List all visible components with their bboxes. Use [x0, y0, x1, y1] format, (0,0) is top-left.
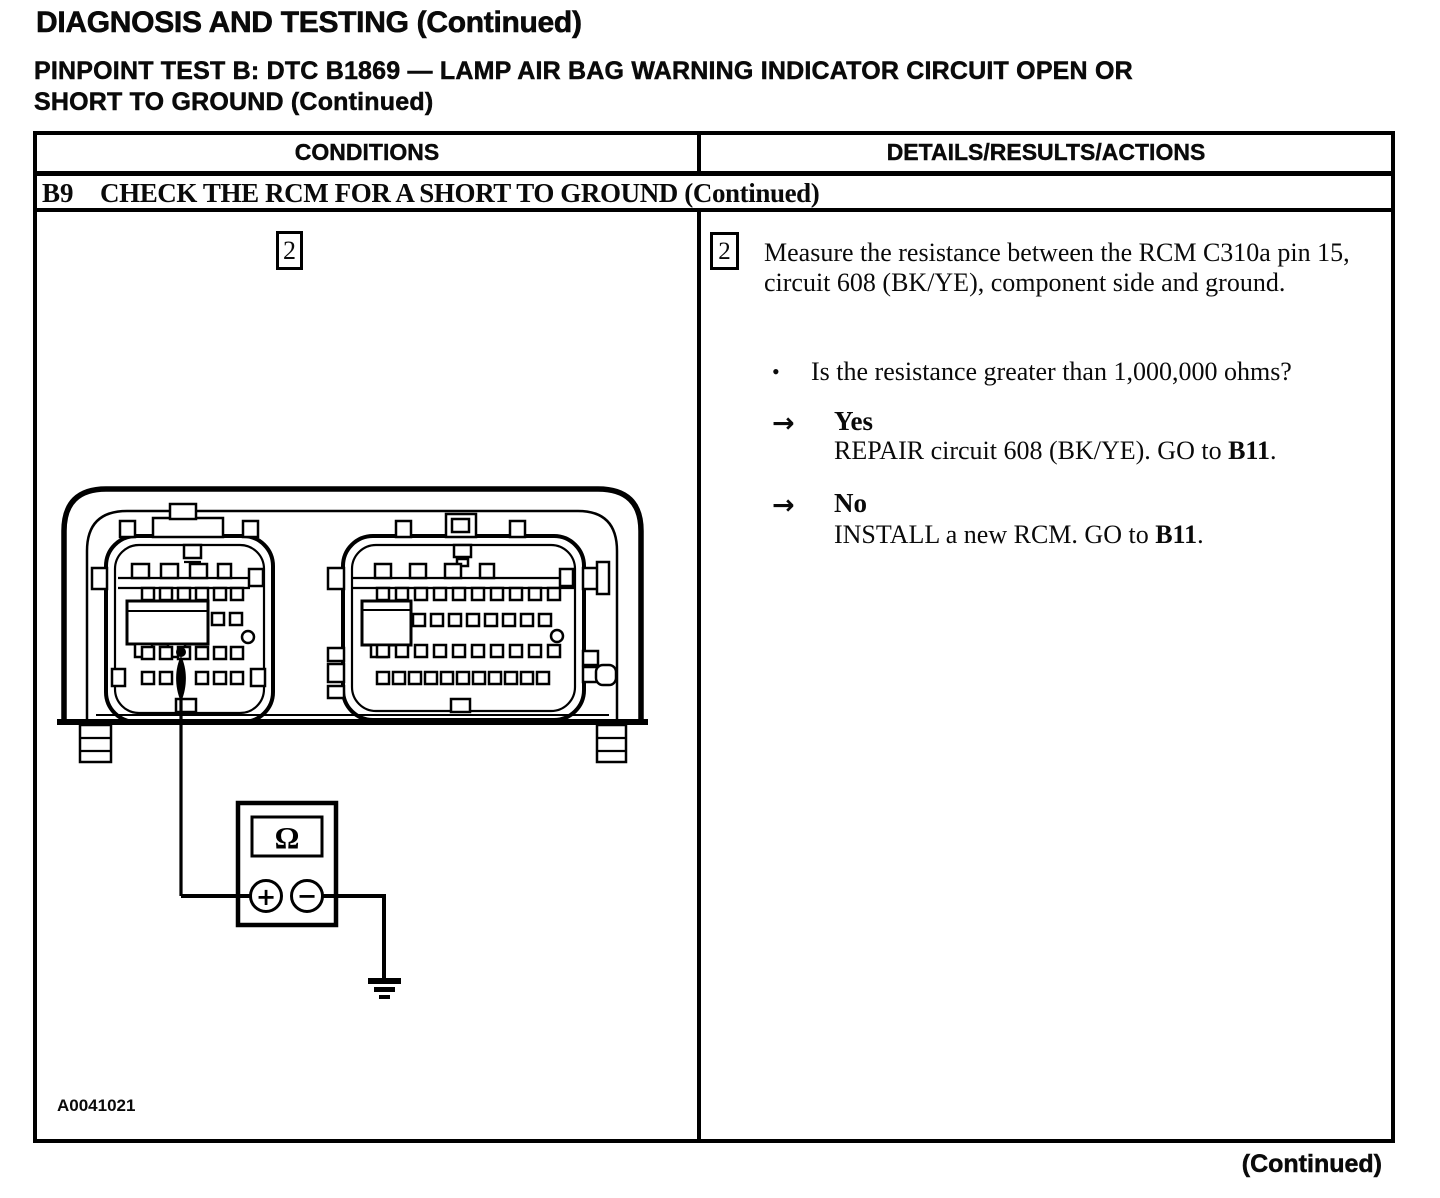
outcome-no-label: No: [834, 488, 867, 519]
mounting-foot-right: [597, 725, 626, 762]
pin-row: [377, 588, 560, 600]
connector-cavity-right: [328, 514, 616, 720]
plus-icon: +: [256, 883, 276, 911]
page-title: DIAGNOSIS AND TESTING (Continued): [36, 6, 582, 40]
ground-icon: [368, 978, 401, 999]
detail-step-number-box: 2: [710, 232, 739, 270]
outcome-no-action-text: INSTALL a new RCM. GO to: [834, 520, 1155, 549]
mounting-foot-left: [80, 725, 111, 762]
outcome-yes-action-target: B11: [1228, 436, 1270, 465]
outcome-no-action-period: .: [1197, 520, 1204, 549]
test-step-title: CHECK THE RCM FOR A SHORT TO GROUND (Con…: [100, 178, 819, 209]
arrow-icon: →: [772, 490, 795, 521]
outcome-yes-action: REPAIR circuit 608 (BK/YE). GO to B11.: [834, 436, 1394, 466]
pin-row: [142, 672, 243, 684]
pin-row: [377, 672, 549, 684]
arrow-icon: →: [772, 408, 795, 439]
ohmmeter: Ω + −: [238, 803, 336, 925]
question-text: Is the resistance greater than 1,000,000…: [811, 357, 1371, 387]
pin-row: [142, 588, 243, 600]
test-probe: [176, 647, 186, 702]
step-instruction: Measure the resistance between the RCM C…: [764, 238, 1369, 297]
pinpoint-test-heading-line1: PINPOINT TEST B: DTC B1869 — LAMP AIR BA…: [34, 57, 1133, 85]
outcome-no-action-target: B11: [1155, 520, 1197, 549]
outcome-no-action: INSTALL a new RCM. GO to B11.: [834, 520, 1394, 550]
rcm-test-figure: Ω + −: [33, 212, 697, 1143]
minus-icon: −: [297, 882, 317, 910]
ohm-symbol: Ω: [275, 820, 300, 855]
outcome-yes-action-text: REPAIR circuit 608 (BK/YE). GO to: [834, 436, 1228, 465]
table-column-divider-body: [697, 208, 701, 1143]
column-header-conditions: CONDITIONS: [37, 139, 697, 166]
pinpoint-test-heading: PINPOINT TEST B: DTC B1869 — LAMP AIR BA…: [34, 56, 1404, 118]
test-step-id: B9: [42, 178, 74, 209]
pin-row: [142, 647, 243, 659]
pin-row: [377, 645, 560, 657]
figure-id: A0041021: [57, 1096, 135, 1116]
table-header-separator: [33, 171, 1395, 176]
bullet-icon: •: [772, 359, 780, 385]
outcome-yes-action-period: .: [1270, 436, 1277, 465]
page-continued-marker: (Continued): [1242, 1150, 1382, 1179]
pin-row: [413, 614, 551, 626]
outcome-yes-label: Yes: [834, 406, 873, 437]
pinpoint-test-heading-line2: SHORT TO GROUND (Continued): [34, 88, 433, 116]
column-header-details: DETAILS/RESULTS/ACTIONS: [701, 139, 1391, 166]
manual-page: DIAGNOSIS AND TESTING (Continued) PINPOI…: [0, 0, 1440, 1198]
